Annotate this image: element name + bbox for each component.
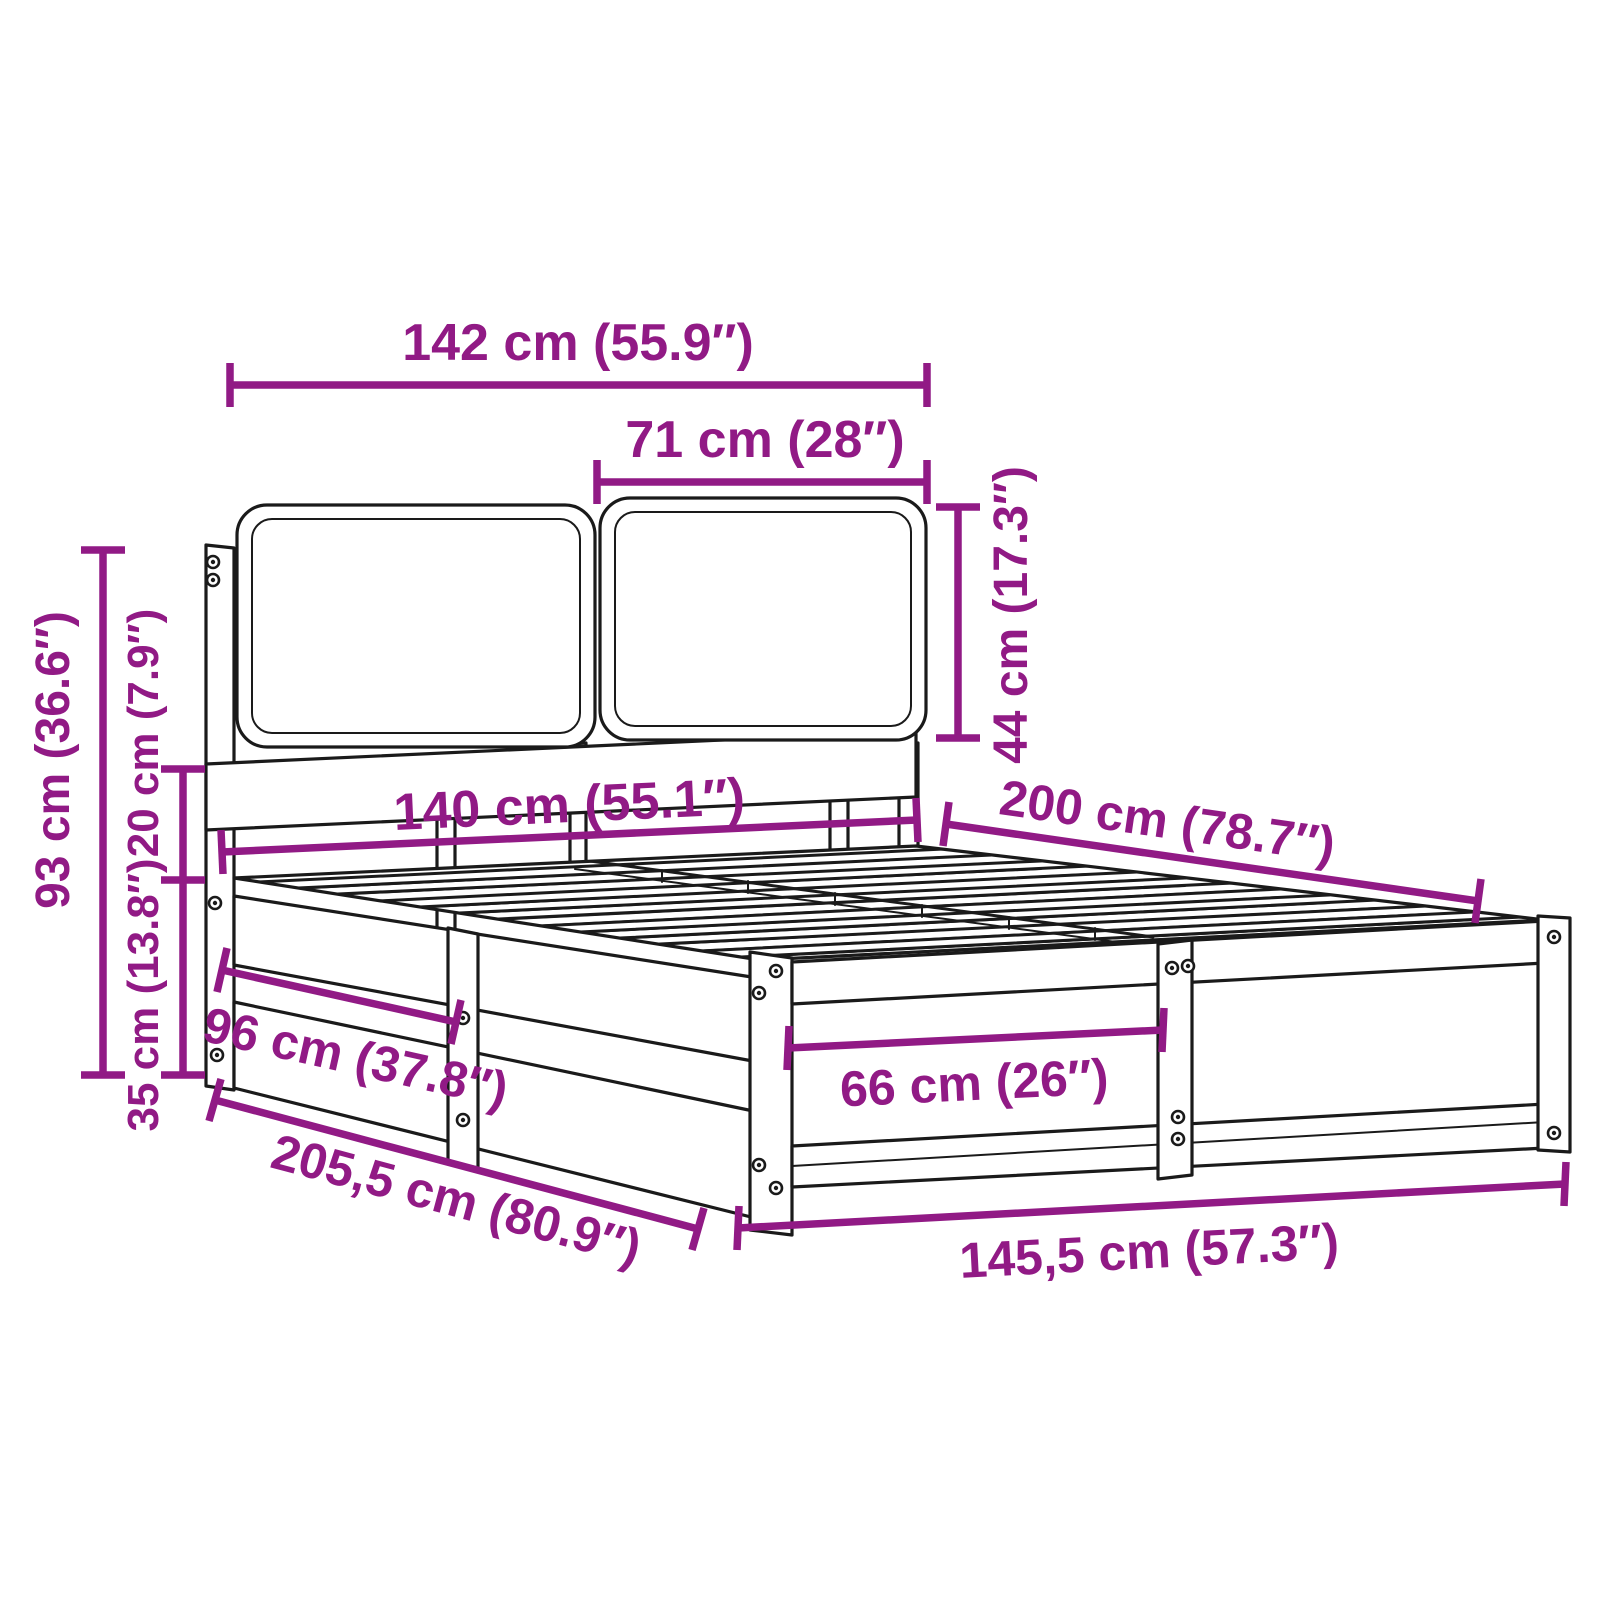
dim-headboard-above-deck-label: 20 cm (7.9″) bbox=[119, 609, 168, 858]
dim-cushion-width: 71 cm (28″) bbox=[597, 411, 927, 504]
dim-overall-width-label: 145,5 cm (57.3″) bbox=[958, 1213, 1340, 1289]
headboard-cushion-left bbox=[237, 505, 595, 747]
side-mid-post bbox=[448, 928, 478, 1168]
dim-total-height: 93 cm (36.6″) bbox=[27, 550, 125, 1075]
dim-foot-rail-section: 66 cm (26″) bbox=[787, 1008, 1164, 1118]
dim-cushion-height-label: 44 cm (17.3″) bbox=[985, 466, 1038, 764]
dim-foot-rail-section-label: 66 cm (26″) bbox=[839, 1048, 1110, 1117]
dim-cushion-height: 44 cm (17.3″) bbox=[936, 466, 1038, 764]
foot-end-post bbox=[1538, 916, 1570, 1152]
dim-headboard-width: 142 cm (55.9″) bbox=[230, 314, 927, 407]
dim-headboard-above-deck: 20 cm (7.9″) 35 cm (13.8″) bbox=[119, 609, 205, 1132]
dim-total-height-label: 93 cm (36.6″) bbox=[27, 611, 80, 909]
headboard-cushion-right bbox=[600, 498, 926, 740]
bed-line-art bbox=[206, 498, 1570, 1235]
dim-headboard-width-label: 142 cm (55.9″) bbox=[402, 314, 754, 372]
dim-cushion-width-label: 71 cm (28″) bbox=[625, 411, 904, 469]
dimension-diagram-canvas: 142 cm (55.9″) 71 cm (28″) 44 cm (17.3″)… bbox=[0, 0, 1600, 1600]
bed-frame-dimension-drawing: 142 cm (55.9″) 71 cm (28″) 44 cm (17.3″)… bbox=[0, 0, 1600, 1600]
dim-frame-height-label: 35 cm (13.8″) bbox=[119, 858, 168, 1131]
